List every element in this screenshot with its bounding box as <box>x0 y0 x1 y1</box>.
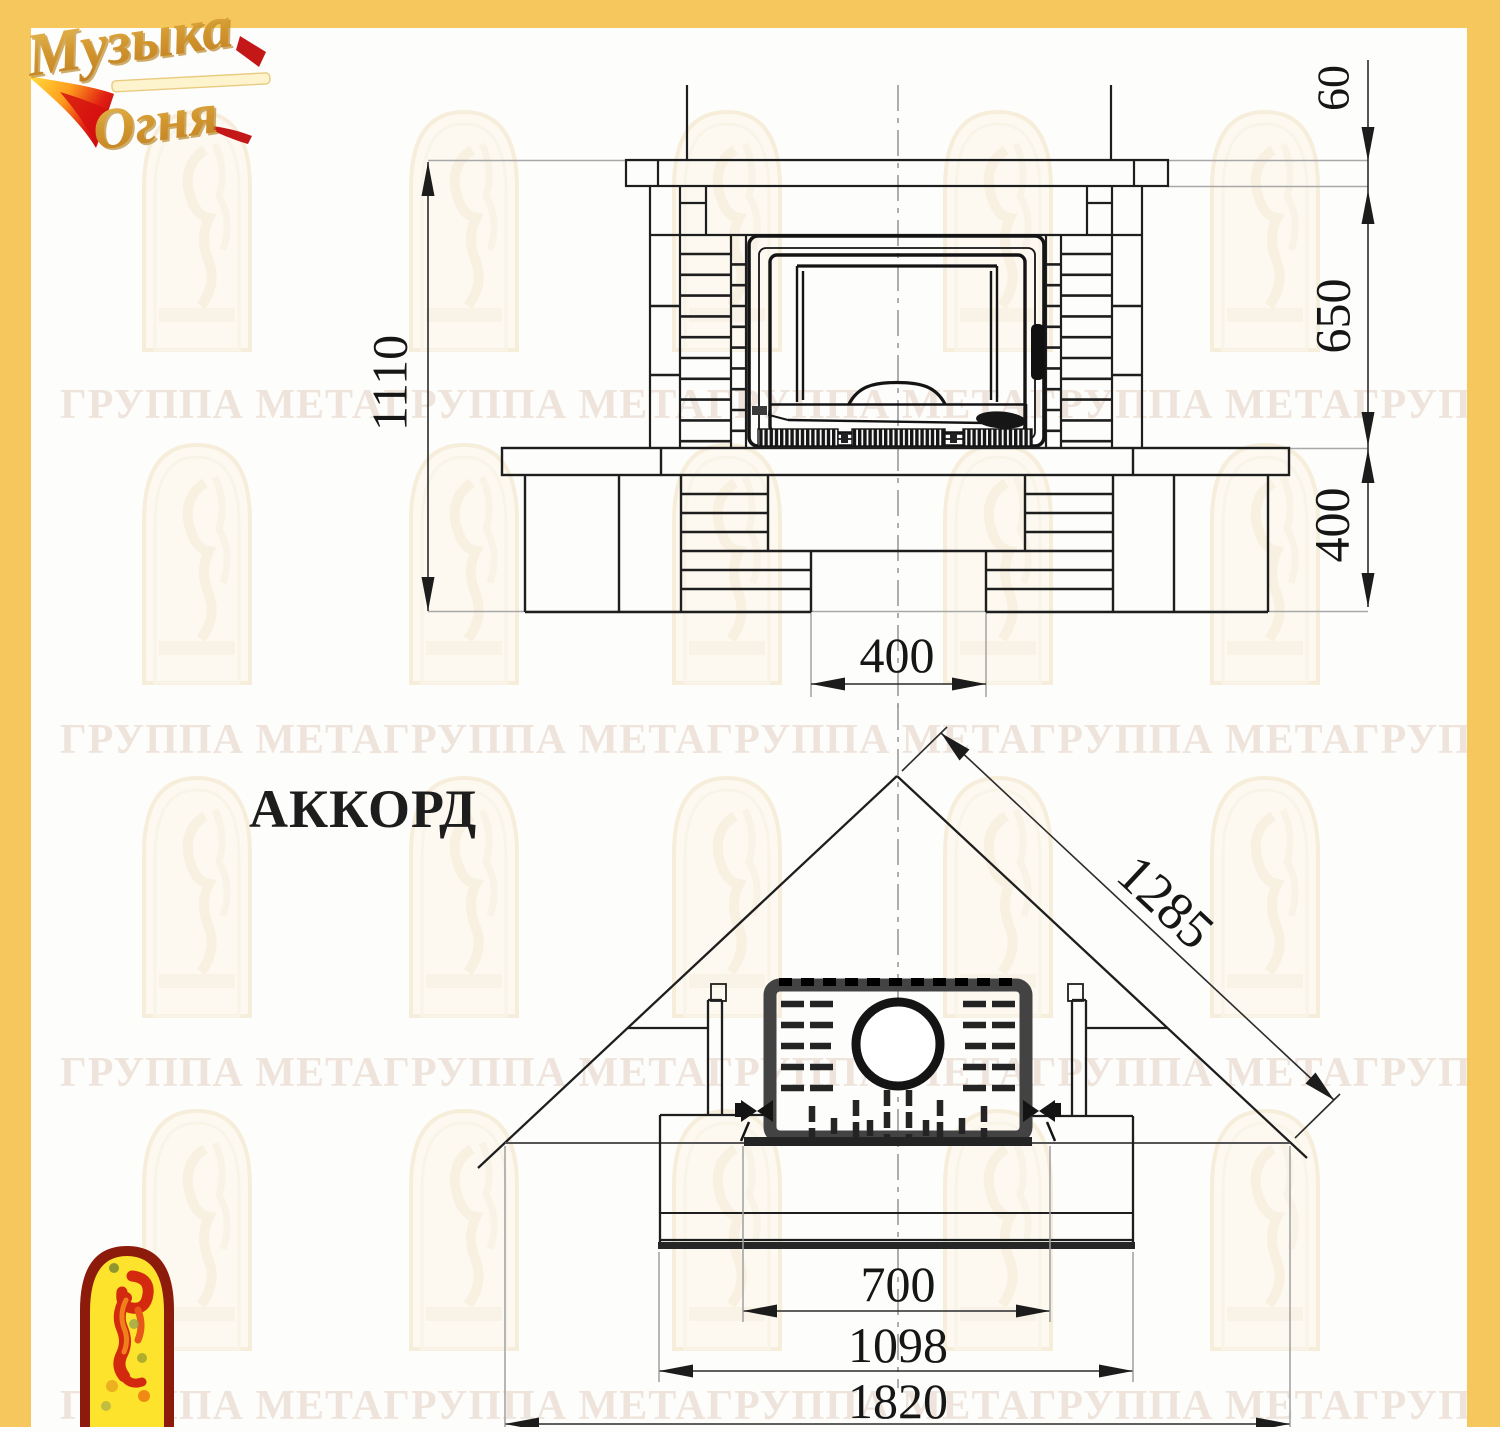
svg-text:700: 700 <box>861 1256 936 1312</box>
svg-text:400: 400 <box>1303 488 1359 563</box>
svg-text:400: 400 <box>860 627 935 683</box>
svg-text:1110: 1110 <box>361 335 417 431</box>
svg-text:60: 60 <box>1308 65 1359 111</box>
svg-text:1098: 1098 <box>848 1317 948 1373</box>
svg-text:1820: 1820 <box>848 1373 948 1427</box>
svg-text:650: 650 <box>1304 279 1360 354</box>
